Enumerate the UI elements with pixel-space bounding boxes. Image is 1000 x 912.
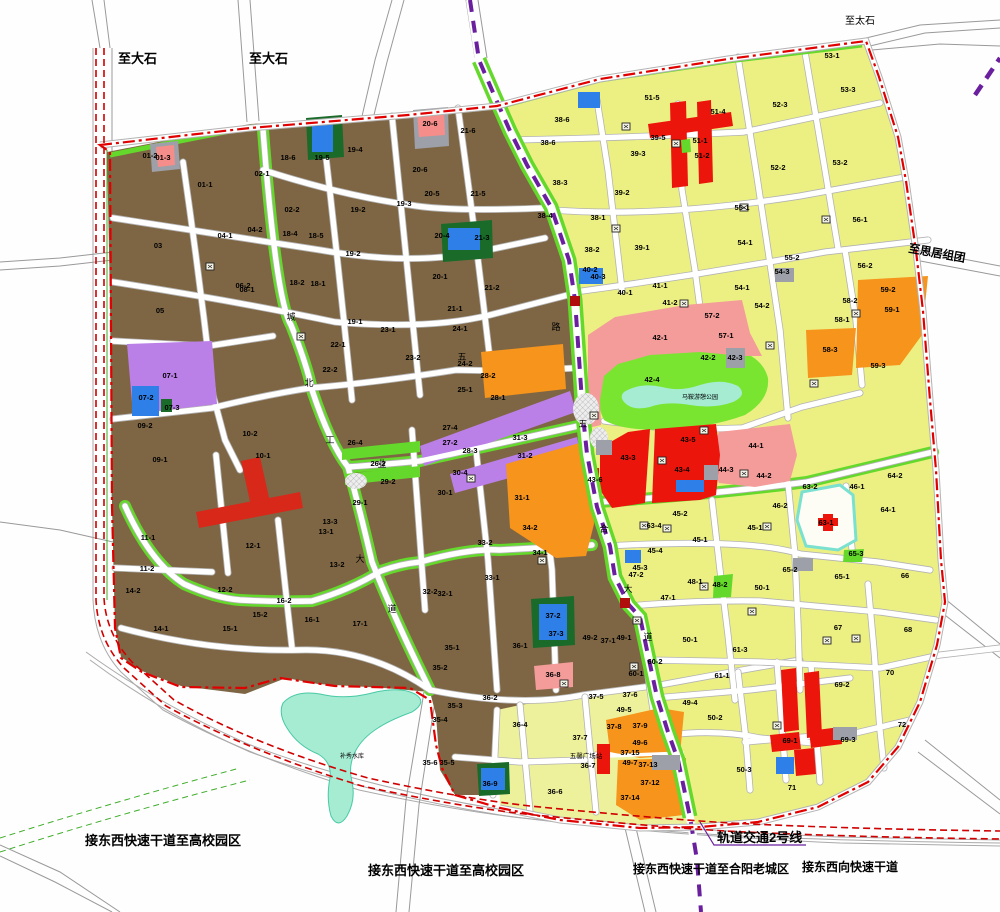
svg-text:合: 合 [599, 523, 608, 534]
svg-text:48-2: 48-2 [712, 580, 727, 589]
svg-text:38-6: 38-6 [554, 115, 569, 124]
svg-text:48-1: 48-1 [687, 577, 702, 586]
svg-text:28-2: 28-2 [480, 371, 495, 380]
svg-text:23-1: 23-1 [380, 325, 395, 334]
svg-text:50-1: 50-1 [754, 583, 769, 592]
svg-text:37-7: 37-7 [572, 733, 587, 742]
svg-text:道: 道 [387, 603, 396, 614]
svg-text:35-2: 35-2 [432, 663, 447, 672]
svg-text:35-5: 35-5 [439, 758, 454, 767]
svg-text:38-4: 38-4 [537, 211, 553, 220]
svg-text:41-2: 41-2 [662, 298, 677, 307]
svg-text:61-3: 61-3 [732, 645, 747, 654]
svg-text:07-1: 07-1 [162, 371, 177, 380]
svg-text:21-6: 21-6 [460, 126, 475, 135]
svg-text:至大石: 至大石 [249, 51, 288, 66]
svg-text:42-2: 42-2 [700, 353, 715, 362]
svg-text:14-2: 14-2 [125, 586, 140, 595]
svg-text:43-6: 43-6 [587, 475, 602, 484]
svg-text:大: 大 [355, 553, 364, 564]
svg-text:38-1: 38-1 [590, 213, 605, 222]
svg-text:58-1: 58-1 [834, 315, 849, 324]
svg-text:26-4: 26-4 [347, 438, 363, 447]
svg-text:49-6: 49-6 [632, 738, 647, 747]
svg-text:33-1: 33-1 [484, 573, 499, 582]
svg-text:35-1: 35-1 [444, 643, 459, 652]
svg-text:接东西快速干道至高校园区: 接东西快速干道至高校园区 [85, 833, 241, 848]
svg-text:65-3: 65-3 [848, 549, 863, 558]
svg-text:18-4: 18-4 [282, 229, 298, 238]
svg-text:30-1: 30-1 [437, 488, 452, 497]
svg-text:马鞍游憩公园: 马鞍游憩公园 [682, 393, 718, 401]
svg-text:业: 业 [377, 459, 386, 469]
svg-text:42-1: 42-1 [652, 333, 667, 342]
svg-text:五馨广场站: 五馨广场站 [570, 751, 603, 760]
svg-text:34-1: 34-1 [532, 548, 547, 557]
svg-text:37-5: 37-5 [588, 692, 603, 701]
svg-text:06-2: 06-2 [235, 281, 250, 290]
svg-text:55-1: 55-1 [734, 203, 749, 212]
svg-text:22-1: 22-1 [330, 340, 345, 349]
svg-text:16-1: 16-1 [304, 615, 319, 624]
svg-text:15-2: 15-2 [252, 610, 267, 619]
svg-text:35-4: 35-4 [432, 715, 448, 724]
svg-text:31-3: 31-3 [512, 433, 527, 442]
svg-text:21-2: 21-2 [484, 283, 499, 292]
svg-text:37-2: 37-2 [545, 611, 560, 620]
svg-text:道: 道 [643, 631, 652, 642]
svg-text:18-6: 18-6 [280, 153, 295, 162]
svg-text:39-1: 39-1 [634, 243, 649, 252]
svg-text:40-1: 40-1 [617, 288, 632, 297]
svg-text:19-1: 19-1 [347, 317, 362, 326]
svg-text:33-2: 33-2 [477, 538, 492, 547]
svg-text:49-4: 49-4 [682, 698, 698, 707]
svg-text:61-1: 61-1 [714, 671, 729, 680]
svg-text:56-1: 56-1 [852, 215, 867, 224]
svg-text:20-1: 20-1 [432, 272, 447, 281]
svg-text:59-2: 59-2 [880, 285, 895, 294]
svg-text:68: 68 [904, 625, 912, 634]
svg-text:29-1: 29-1 [352, 498, 367, 507]
svg-text:12-1: 12-1 [245, 541, 260, 550]
svg-text:16-2: 16-2 [276, 596, 291, 605]
svg-text:11-1: 11-1 [141, 533, 156, 542]
svg-text:54-1: 54-1 [737, 238, 752, 247]
svg-text:工: 工 [325, 435, 334, 445]
svg-text:70: 70 [886, 668, 894, 677]
svg-text:66: 66 [901, 571, 909, 580]
svg-text:63-4: 63-4 [646, 521, 662, 530]
svg-text:69-3: 69-3 [840, 735, 855, 744]
svg-text:36-2: 36-2 [482, 693, 497, 702]
svg-text:35-6: 35-6 [422, 758, 437, 767]
svg-text:36-4: 36-4 [512, 720, 528, 729]
svg-text:60-1: 60-1 [628, 669, 643, 678]
svg-text:49-5: 49-5 [616, 705, 631, 714]
svg-text:27-2: 27-2 [442, 438, 457, 447]
svg-text:36-8: 36-8 [545, 670, 560, 679]
svg-text:25-1: 25-1 [457, 385, 472, 394]
svg-text:07-3: 07-3 [164, 403, 179, 412]
svg-text:37-1: 37-1 [600, 636, 615, 645]
svg-text:50-1: 50-1 [682, 635, 697, 644]
svg-text:57-2: 57-2 [704, 311, 719, 320]
svg-text:29-2: 29-2 [380, 477, 395, 486]
svg-text:19-2: 19-2 [350, 205, 365, 214]
svg-text:36-6: 36-6 [547, 787, 562, 796]
svg-text:27-4: 27-4 [442, 423, 458, 432]
svg-text:53-1: 53-1 [824, 51, 839, 60]
svg-text:07-2: 07-2 [138, 393, 153, 402]
svg-text:56-2: 56-2 [857, 261, 872, 270]
svg-text:五: 五 [457, 352, 466, 362]
svg-text:51-5: 51-5 [644, 93, 659, 102]
svg-text:44-1: 44-1 [748, 441, 763, 450]
svg-text:北: 北 [304, 378, 313, 388]
svg-text:21-1: 21-1 [447, 304, 462, 313]
svg-text:38-3: 38-3 [552, 178, 567, 187]
svg-text:20-4: 20-4 [434, 231, 450, 240]
svg-text:02-2: 02-2 [284, 205, 299, 214]
svg-text:44-3: 44-3 [718, 465, 733, 474]
svg-text:64-2: 64-2 [887, 471, 902, 480]
svg-text:46-2: 46-2 [772, 501, 787, 510]
svg-text:34-2: 34-2 [522, 523, 537, 532]
svg-text:47-2: 47-2 [628, 570, 643, 579]
svg-text:36-1: 36-1 [512, 641, 527, 650]
svg-text:09-1: 09-1 [152, 455, 167, 464]
svg-text:13-2: 13-2 [329, 560, 344, 569]
svg-text:42-4: 42-4 [644, 375, 660, 384]
svg-text:24-1: 24-1 [452, 324, 467, 333]
svg-text:04-2: 04-2 [247, 225, 262, 234]
svg-text:04-1: 04-1 [217, 231, 232, 240]
svg-text:58-3: 58-3 [822, 345, 837, 354]
svg-text:17-1: 17-1 [352, 619, 367, 628]
svg-text:轨道交通2号线: 轨道交通2号线 [717, 830, 802, 845]
svg-text:72: 72 [898, 720, 906, 729]
svg-text:19-5: 19-5 [314, 153, 329, 162]
svg-text:03: 03 [154, 241, 162, 250]
svg-text:36-9: 36-9 [482, 779, 497, 788]
svg-text:36-7: 36-7 [580, 761, 595, 770]
svg-text:39-5: 39-5 [650, 133, 665, 142]
svg-text:11-2: 11-2 [140, 564, 155, 573]
svg-text:21-3: 21-3 [474, 233, 489, 242]
svg-text:59-1: 59-1 [884, 305, 899, 314]
svg-text:51-2: 51-2 [694, 151, 709, 160]
svg-text:20-6: 20-6 [412, 165, 427, 174]
svg-text:49-7: 49-7 [622, 758, 637, 767]
svg-text:38-2: 38-2 [584, 245, 599, 254]
svg-text:65-1: 65-1 [834, 572, 849, 581]
svg-text:45-4: 45-4 [647, 546, 663, 555]
svg-text:49-1: 49-1 [616, 633, 631, 642]
svg-text:19-2: 19-2 [345, 249, 360, 258]
svg-text:13-3: 13-3 [322, 517, 337, 526]
svg-text:37-8: 37-8 [606, 722, 621, 731]
svg-text:43-3: 43-3 [620, 453, 635, 462]
svg-text:49-2: 49-2 [582, 633, 597, 642]
svg-text:57-1: 57-1 [718, 331, 733, 340]
svg-text:63-2: 63-2 [802, 482, 817, 491]
svg-text:至太石: 至太石 [845, 14, 875, 27]
svg-text:10-1: 10-1 [255, 451, 270, 460]
svg-text:37-15: 37-15 [620, 748, 639, 757]
svg-text:路: 路 [551, 321, 560, 332]
svg-text:45-2: 45-2 [672, 509, 687, 518]
svg-text:12-2: 12-2 [217, 585, 232, 594]
svg-text:28-1: 28-1 [490, 393, 505, 402]
svg-text:城: 城 [286, 312, 295, 322]
svg-text:18-5: 18-5 [308, 231, 323, 240]
svg-text:15-1: 15-1 [222, 624, 237, 633]
svg-text:13-1: 13-1 [318, 527, 333, 536]
svg-text:02-1: 02-1 [254, 169, 269, 178]
svg-text:42-3: 42-3 [727, 353, 742, 362]
svg-text:52-2: 52-2 [770, 163, 785, 172]
svg-text:50-2: 50-2 [707, 713, 722, 722]
svg-text:23-2: 23-2 [405, 353, 420, 362]
svg-text:28-3: 28-3 [462, 446, 477, 455]
svg-text:补秀水库: 补秀水库 [340, 752, 364, 760]
svg-text:37-14: 37-14 [620, 793, 640, 802]
svg-text:46-1: 46-1 [849, 482, 864, 491]
svg-text:54-3: 54-3 [774, 267, 789, 276]
svg-text:65-2: 65-2 [782, 565, 797, 574]
svg-text:37-6: 37-6 [622, 690, 637, 699]
svg-text:38-6: 38-6 [540, 138, 555, 147]
svg-text:35-3: 35-3 [447, 701, 462, 710]
svg-text:71: 71 [788, 783, 796, 792]
svg-text:60-2: 60-2 [647, 657, 662, 666]
svg-text:19-4: 19-4 [347, 145, 363, 154]
svg-text:接东西向快速干道: 接东西向快速干道 [802, 859, 898, 874]
svg-text:37-12: 37-12 [640, 778, 659, 787]
svg-text:52-3: 52-3 [772, 100, 787, 109]
svg-text:21-5: 21-5 [470, 189, 485, 198]
svg-text:20-6: 20-6 [422, 119, 437, 128]
svg-text:32-1: 32-1 [437, 589, 452, 598]
svg-text:64-1: 64-1 [880, 505, 895, 514]
svg-text:44-2: 44-2 [756, 471, 771, 480]
svg-text:31-1: 31-1 [514, 493, 529, 502]
svg-text:69-1: 69-1 [782, 736, 797, 745]
svg-text:05: 05 [156, 306, 164, 315]
svg-text:43-5: 43-5 [680, 435, 695, 444]
svg-text:14-1: 14-1 [153, 624, 168, 633]
svg-text:58-2: 58-2 [842, 296, 857, 305]
svg-text:51-4: 51-4 [710, 107, 726, 116]
svg-text:五: 五 [578, 419, 587, 429]
svg-text:09-2: 09-2 [137, 421, 152, 430]
svg-text:32-2: 32-2 [422, 587, 437, 596]
svg-text:53-2: 53-2 [832, 158, 847, 167]
svg-text:大: 大 [623, 583, 632, 594]
svg-text:43-4: 43-4 [674, 465, 690, 474]
svg-text:45-1: 45-1 [747, 523, 762, 532]
svg-text:40-2: 40-2 [582, 265, 597, 274]
svg-text:接东西快速干道至合阳老城区: 接东西快速干道至合阳老城区 [633, 861, 789, 876]
svg-text:18-2: 18-2 [289, 278, 304, 287]
svg-text:39-3: 39-3 [630, 149, 645, 158]
svg-text:41-1: 41-1 [652, 281, 667, 290]
svg-text:54-2: 54-2 [754, 301, 769, 310]
svg-text:19-3: 19-3 [396, 199, 411, 208]
svg-text:37-13: 37-13 [638, 760, 657, 769]
svg-text:20-5: 20-5 [424, 189, 439, 198]
svg-text:67: 67 [834, 623, 842, 632]
svg-text:39-2: 39-2 [614, 188, 629, 197]
svg-text:59-3: 59-3 [870, 361, 885, 370]
svg-text:54-1: 54-1 [734, 283, 749, 292]
svg-text:31-2: 31-2 [517, 451, 532, 460]
svg-text:47-1: 47-1 [660, 593, 675, 602]
svg-text:01-3: 01-3 [155, 153, 170, 162]
svg-text:22-2: 22-2 [322, 365, 337, 374]
svg-text:至大石: 至大石 [118, 51, 157, 66]
svg-text:63-1: 63-1 [818, 518, 833, 527]
svg-text:接东西快速干道至高校园区: 接东西快速干道至高校园区 [368, 863, 524, 878]
svg-text:53-3: 53-3 [840, 85, 855, 94]
svg-text:30-4: 30-4 [452, 468, 468, 477]
svg-text:01-1: 01-1 [197, 180, 212, 189]
svg-text:18-1: 18-1 [310, 279, 325, 288]
svg-text:55-2: 55-2 [784, 253, 799, 262]
svg-text:37-3: 37-3 [548, 629, 563, 638]
svg-text:37-9: 37-9 [632, 721, 647, 730]
svg-text:69-2: 69-2 [834, 680, 849, 689]
svg-text:50-3: 50-3 [736, 765, 751, 774]
svg-text:10-2: 10-2 [242, 429, 257, 438]
svg-text:51-1: 51-1 [692, 136, 707, 145]
svg-text:45-1: 45-1 [692, 535, 707, 544]
